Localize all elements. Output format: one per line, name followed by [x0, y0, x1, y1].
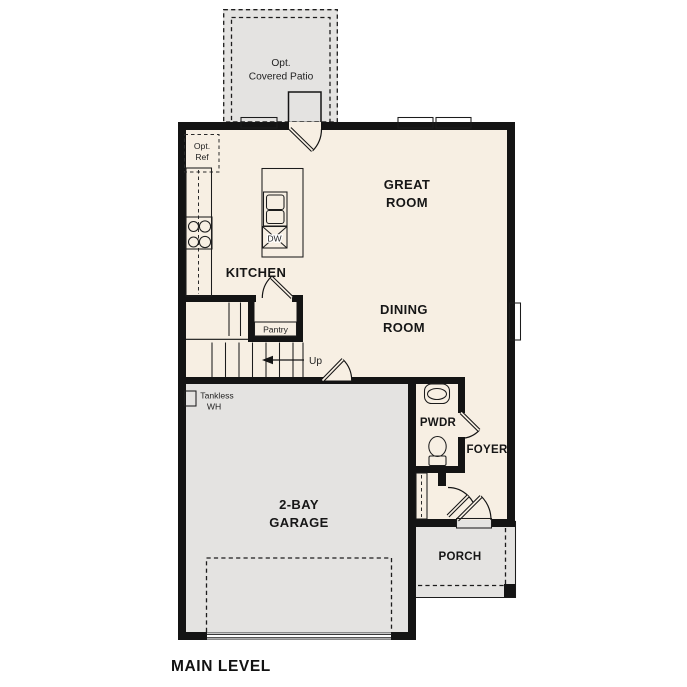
- opt-ref-label-line1: Opt.: [194, 141, 210, 151]
- kitchen-label: KITCHEN: [226, 265, 287, 280]
- tankless-label-line1: Tankless: [200, 391, 233, 401]
- pantry-door-opening: [256, 295, 292, 303]
- wall-closet-stub: [438, 473, 446, 486]
- great-room-label-line1: GREAT: [384, 177, 431, 192]
- covered-patio: Opt. Covered Patio: [223, 9, 338, 123]
- dining-room-label-line2: ROOM: [383, 320, 425, 335]
- wall-powder-right-upper: [458, 377, 465, 413]
- pantry-label: Pantry: [263, 325, 289, 335]
- wall-pantry-right: [297, 295, 304, 342]
- stairs-up-label: Up: [309, 356, 322, 367]
- patio-label-line1: Opt.: [271, 58, 290, 69]
- porch: PORCH: [416, 520, 516, 598]
- foyer-label: FOYER: [466, 444, 508, 456]
- wall-pantry-bottom: [248, 336, 303, 342]
- wall-powder-bottom: [408, 466, 465, 473]
- powder-label: PWDR: [420, 417, 457, 429]
- floor-plan-drawing: Opt. Covered Patio PORCH: [0, 0, 687, 687]
- wall-garage-right: [408, 377, 416, 640]
- porch-label: PORCH: [438, 551, 481, 563]
- tankless-label-line2: WH: [207, 402, 221, 412]
- wall-garage-top: [178, 377, 465, 384]
- great-room-label-line2: ROOM: [386, 195, 428, 210]
- garage-label-line1: 2-BAY: [279, 497, 319, 512]
- porch-column: [504, 584, 516, 598]
- wall-right: [507, 122, 515, 527]
- garage-door-panel: [207, 633, 391, 640]
- opt-ref-label-line2: Ref: [195, 152, 209, 162]
- dishwasher-label: DW: [267, 234, 282, 244]
- dining-room-label-line1: DINING: [380, 302, 428, 317]
- wall-foyer-bottom-right: [492, 519, 515, 527]
- main-floor: [186, 129, 507, 378]
- wall-foyer-bottom-left: [408, 519, 456, 527]
- wall-top: [178, 122, 515, 130]
- floor-plan-page: Opt. Covered Patio PORCH: [0, 0, 687, 687]
- plan-title: MAIN LEVEL: [171, 658, 271, 675]
- wall-pantry-left: [248, 295, 255, 342]
- garage-vehicle-door: [207, 633, 391, 640]
- patio-label-line2: Covered Patio: [249, 72, 314, 83]
- garage-label-line2: GARAGE: [269, 515, 328, 530]
